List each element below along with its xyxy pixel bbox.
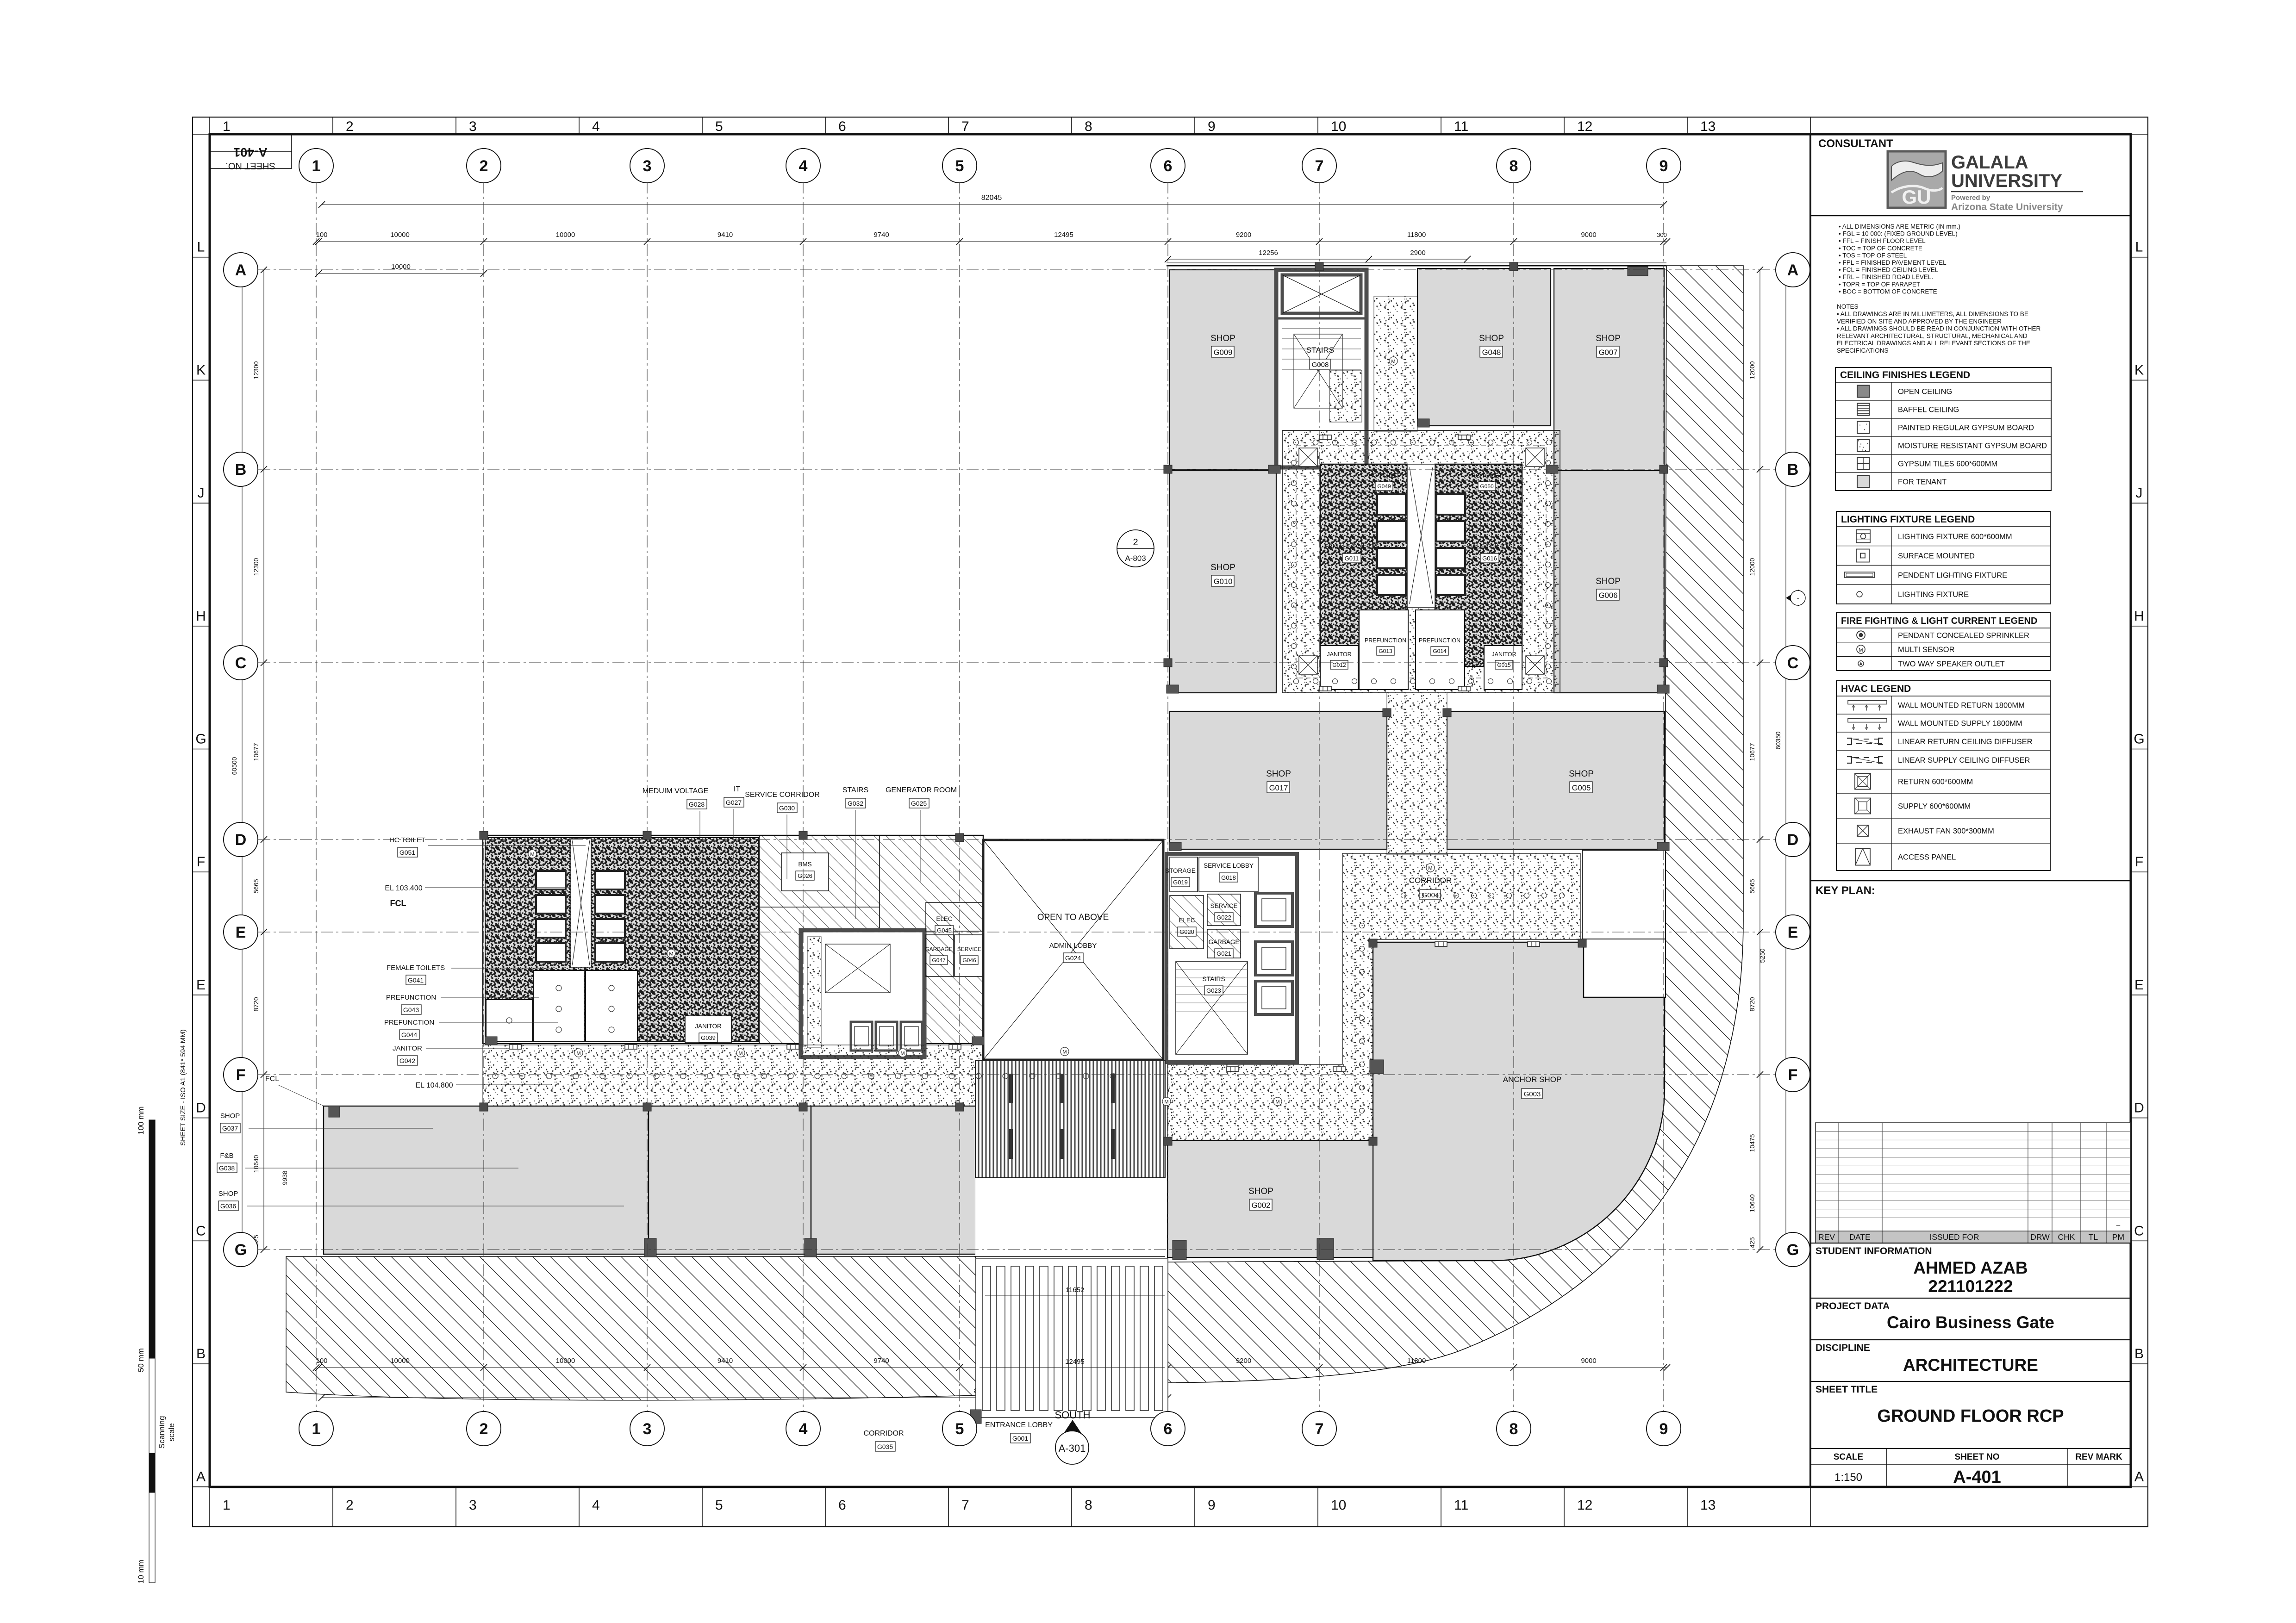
- svg-text:STAIRS: STAIRS: [1202, 975, 1225, 983]
- svg-text:C: C: [235, 654, 247, 672]
- svg-text:GU: GU: [1902, 186, 1931, 208]
- svg-text:PREFUNCTION: PREFUNCTION: [384, 1019, 434, 1026]
- svg-text:D: D: [1787, 831, 1799, 849]
- svg-text:A: A: [235, 261, 247, 279]
- svg-text:B: B: [1787, 461, 1799, 479]
- svg-text:F: F: [197, 854, 205, 870]
- svg-text:LIGHTING FIXTURE LEGEND: LIGHTING FIXTURE LEGEND: [1841, 514, 1975, 525]
- svg-text:G043: G043: [403, 1006, 419, 1014]
- svg-text:60500: 60500: [231, 757, 238, 775]
- svg-text:G041: G041: [408, 976, 424, 984]
- svg-text:E: E: [1788, 924, 1798, 941]
- svg-text:8: 8: [1085, 1498, 1092, 1513]
- svg-text:3: 3: [469, 1498, 477, 1513]
- svg-text:STORAGE: STORAGE: [1165, 867, 1196, 874]
- svg-text:RELEVANT ARCHITECTURAL, STRUCT: RELEVANT ARCHITECTURAL, STRUCTURAL, MECH…: [1837, 332, 2028, 339]
- svg-text:HVAC LEGEND: HVAC LEGEND: [1841, 684, 1911, 694]
- svg-text:11: 11: [1454, 1498, 1468, 1513]
- svg-text:GALALA: GALALA: [1951, 152, 2028, 173]
- svg-text:G024: G024: [1065, 954, 1081, 962]
- svg-text:FOR TENANT: FOR TENANT: [1898, 478, 1947, 486]
- svg-text:SHEET SIZE - ISO A1 (841* 594: SHEET SIZE - ISO A1 (841* 594 MM): [179, 1029, 187, 1145]
- svg-text:G006: G006: [1599, 591, 1618, 600]
- svg-text:A-301: A-301: [1059, 1443, 1086, 1454]
- svg-text:HC TOILET: HC TOILET: [1471, 472, 1502, 479]
- svg-text:7: 7: [961, 1498, 969, 1513]
- svg-text:DATE: DATE: [1849, 1232, 1870, 1242]
- svg-text:G030: G030: [779, 804, 795, 812]
- svg-text:5: 5: [955, 1420, 964, 1438]
- svg-text:MOISTURE RESISTANT GYPSUM BOAR: MOISTURE RESISTANT GYPSUM BOARD: [1898, 442, 2047, 450]
- svg-text:Arizona State University: Arizona State University: [1951, 202, 2063, 212]
- svg-text:G: G: [195, 732, 206, 747]
- svg-text:300: 300: [1657, 231, 1667, 238]
- svg-text:SHOP: SHOP: [220, 1112, 240, 1120]
- svg-text:8: 8: [1510, 157, 1518, 175]
- svg-text:8720: 8720: [1748, 997, 1756, 1011]
- svg-text:2: 2: [480, 1420, 488, 1438]
- svg-text:G019: G019: [1173, 879, 1188, 886]
- svg-text:G: G: [1787, 1241, 1799, 1259]
- svg-text:NOTES: NOTES: [1837, 303, 1859, 310]
- svg-text:10677: 10677: [1748, 743, 1756, 761]
- svg-text:SHOP: SHOP: [1596, 334, 1621, 343]
- svg-text:WALL MOUNTED SUPPLY 1800MM: WALL MOUNTED SUPPLY 1800MM: [1898, 720, 2022, 728]
- svg-text:JANITOR: JANITOR: [1491, 651, 1516, 658]
- svg-text:FCL: FCL: [390, 899, 406, 908]
- svg-text:J: J: [2136, 485, 2143, 501]
- svg-text:10: 10: [1331, 1498, 1346, 1513]
- svg-text:C: C: [196, 1223, 206, 1238]
- svg-text:CONSULTANT: CONSULTANT: [1818, 137, 1893, 150]
- svg-text:9: 9: [1208, 119, 1216, 134]
- svg-text:SHOP: SHOP: [1596, 577, 1621, 586]
- svg-text:• FRL = FINISHED ROAD LEVEL.: • FRL = FINISHED ROAD LEVEL.: [1839, 274, 1933, 280]
- svg-text:A-803: A-803: [1125, 554, 1146, 563]
- svg-text:12256: 12256: [1259, 249, 1278, 257]
- svg-text:425: 425: [1748, 1237, 1756, 1248]
- svg-text:ADMIN LOBBY: ADMIN LOBBY: [1049, 942, 1097, 950]
- svg-text:E: E: [196, 977, 206, 993]
- svg-text:TWO WAY SPEAKER OUTLET: TWO WAY SPEAKER OUTLET: [1898, 660, 2005, 668]
- svg-text:G036: G036: [220, 1202, 236, 1210]
- svg-text:ELECTRICAL DRAWINGS AND ALL RE: ELECTRICAL DRAWINGS AND ALL RELEVANT SEC…: [1837, 340, 2030, 347]
- svg-text:SUPPLY 600*600MM: SUPPLY 600*600MM: [1898, 802, 1971, 811]
- svg-text:PENDANT CONCEALED SPRINKLER: PENDANT CONCEALED SPRINKLER: [1898, 631, 2029, 640]
- svg-text:6: 6: [838, 1498, 846, 1513]
- svg-text:CHK: CHK: [2058, 1232, 2075, 1242]
- svg-text:M: M: [1164, 1100, 1168, 1105]
- svg-text:5665: 5665: [252, 879, 260, 893]
- svg-text:60350: 60350: [1774, 731, 1782, 749]
- svg-text:B: B: [235, 461, 247, 479]
- svg-text:SCALE: SCALE: [1834, 1452, 1863, 1462]
- svg-text:A-401: A-401: [1953, 1468, 2001, 1487]
- svg-text:PREFUNCTION: PREFUNCTION: [1365, 637, 1406, 644]
- svg-text:G039: G039: [701, 1034, 716, 1041]
- svg-text:EXHAUST FAN 300*300MM: EXHAUST FAN 300*300MM: [1898, 827, 1994, 835]
- svg-text:LINEAR SUPPLY CEILING DIFFUSER: LINEAR SUPPLY CEILING DIFFUSER: [1898, 756, 2030, 765]
- svg-text:12300: 12300: [252, 361, 260, 379]
- svg-text:9: 9: [1660, 1420, 1668, 1438]
- svg-text:12495: 12495: [1054, 231, 1073, 239]
- svg-text:6: 6: [838, 119, 846, 134]
- svg-text:PAINTED REGULAR GYPSUM BOARD: PAINTED REGULAR GYPSUM BOARD: [1898, 424, 2034, 432]
- svg-text:SERVICE LOBBY: SERVICE LOBBY: [1204, 862, 1254, 869]
- svg-text:G001: G001: [1012, 1435, 1028, 1442]
- svg-text:M: M: [900, 1051, 905, 1057]
- svg-text:G044: G044: [401, 1031, 417, 1038]
- svg-text:9: 9: [1660, 157, 1668, 175]
- svg-text:• ALL DRAWINGS ARE IN MILLIMET: • ALL DRAWINGS ARE IN MILLIMETERS, ALL D…: [1837, 311, 2028, 317]
- svg-text:ACCESS PANEL: ACCESS PANEL: [1898, 853, 1956, 862]
- svg-text:ELEC: ELEC: [936, 915, 953, 922]
- svg-text:2900: 2900: [1410, 249, 1425, 257]
- svg-text:9000: 9000: [1581, 231, 1596, 239]
- svg-text:4: 4: [592, 119, 600, 134]
- svg-text:F: F: [2135, 854, 2143, 870]
- svg-text:• TOPR = TOP OF PARAPET: • TOPR = TOP OF PARAPET: [1839, 281, 1920, 288]
- svg-text:scale: scale: [167, 1423, 176, 1442]
- svg-text:REV MARK: REV MARK: [2075, 1452, 2122, 1462]
- svg-text:6: 6: [1164, 157, 1173, 175]
- svg-text:Scanning: Scanning: [157, 1416, 166, 1449]
- svg-text:13: 13: [1700, 119, 1716, 134]
- svg-text:G051: G051: [399, 849, 415, 856]
- svg-text:8: 8: [1085, 119, 1092, 134]
- svg-text:PREFUNCTION: PREFUNCTION: [1419, 637, 1460, 644]
- svg-text:• FCL = FINISHED CEILING LEVEL: • FCL = FINISHED CEILING LEVEL: [1839, 267, 1939, 274]
- svg-text:7: 7: [1315, 1420, 1324, 1438]
- svg-text:221101222: 221101222: [1928, 1277, 2013, 1296]
- svg-text:JANITOR: JANITOR: [695, 1023, 722, 1030]
- svg-text:REV: REV: [1818, 1232, 1835, 1242]
- svg-text:G017: G017: [1269, 784, 1288, 792]
- svg-text:JANITOR: JANITOR: [393, 1045, 422, 1052]
- svg-text:12: 12: [1577, 1498, 1592, 1513]
- svg-text:5250: 5250: [1759, 948, 1766, 963]
- svg-text:A: A: [196, 1469, 206, 1485]
- svg-text:H: H: [196, 609, 206, 624]
- svg-text:G028: G028: [689, 801, 705, 808]
- svg-text:100: 100: [316, 231, 327, 239]
- svg-text:10000: 10000: [556, 231, 575, 239]
- svg-text:FCL: FCL: [265, 1075, 279, 1083]
- svg-text:G035: G035: [877, 1443, 893, 1450]
- svg-text:–: –: [2116, 1221, 2121, 1229]
- svg-text:5: 5: [955, 157, 964, 175]
- svg-text:G049: G049: [1377, 483, 1391, 490]
- svg-text:STUDENT INFORMATION: STUDENT INFORMATION: [1816, 1246, 1932, 1256]
- svg-text:12000: 12000: [1748, 558, 1756, 576]
- svg-text:GARBAGE: GARBAGE: [925, 946, 952, 952]
- svg-text:• TOC = TOP OF CONCRETE: • TOC = TOP OF CONCRETE: [1839, 245, 1922, 252]
- svg-text:1: 1: [223, 1498, 231, 1513]
- svg-text:G037: G037: [222, 1125, 238, 1132]
- svg-text:A: A: [1787, 261, 1799, 279]
- svg-text:HC TOILET: HC TOILET: [1368, 472, 1399, 479]
- svg-text:G013: G013: [1379, 648, 1392, 654]
- svg-text:H: H: [2134, 609, 2144, 624]
- svg-text:TL: TL: [2089, 1232, 2098, 1242]
- svg-text:EL 103.400: EL 103.400: [385, 884, 422, 892]
- svg-text:B: B: [196, 1346, 206, 1362]
- svg-text:GYPSUM TILES 600*600MM: GYPSUM TILES 600*600MM: [1898, 460, 1997, 468]
- svg-text:10640: 10640: [252, 1155, 260, 1173]
- svg-text:SERVICE CORRIDOR: SERVICE CORRIDOR: [745, 791, 820, 799]
- svg-text:M: M: [1428, 866, 1432, 871]
- svg-text:E: E: [236, 924, 246, 941]
- svg-text:G045: G045: [937, 927, 952, 934]
- svg-text:KEY PLAN:: KEY PLAN:: [1816, 884, 1875, 897]
- svg-text:D: D: [2134, 1101, 2144, 1116]
- svg-text:SOUTH: SOUTH: [1055, 1409, 1091, 1421]
- svg-text:STAIRS: STAIRS: [1306, 346, 1334, 354]
- svg-text:M: M: [530, 852, 534, 858]
- svg-text:100 mm: 100 mm: [137, 1107, 145, 1135]
- svg-text:GENERATOR ROOM: GENERATOR ROOM: [886, 786, 957, 794]
- svg-text:G016: G016: [1482, 555, 1497, 562]
- svg-text:MULTI SENSOR: MULTI SENSOR: [1898, 646, 1955, 654]
- svg-text:10 mm: 10 mm: [137, 1560, 145, 1584]
- svg-text:G023: G023: [1206, 987, 1221, 994]
- svg-text:G: G: [2134, 732, 2144, 747]
- svg-text:K: K: [196, 362, 206, 378]
- svg-text:EL 104.800: EL 104.800: [415, 1082, 453, 1089]
- svg-text:SHEET NO: SHEET NO: [1954, 1452, 1999, 1462]
- svg-text:10000: 10000: [390, 231, 410, 239]
- svg-text:9410: 9410: [717, 231, 733, 239]
- svg-text:G: G: [235, 1241, 247, 1259]
- svg-text:G038: G038: [219, 1164, 235, 1172]
- svg-text:G002: G002: [1252, 1201, 1271, 1210]
- svg-text:11: 11: [1454, 119, 1468, 134]
- svg-text:B: B: [2134, 1346, 2144, 1362]
- svg-text:OPEN TO ABOVE: OPEN TO ABOVE: [1037, 913, 1109, 922]
- svg-text:M: M: [576, 1051, 580, 1057]
- svg-text:G005: G005: [1572, 784, 1591, 792]
- svg-text:SERVICE: SERVICE: [957, 946, 981, 952]
- svg-text:9938: 9938: [281, 1170, 288, 1185]
- svg-text:M: M: [1391, 359, 1395, 365]
- svg-text:FIRE FIGHTING & LIGHT CURRENT: FIRE FIGHTING & LIGHT CURRENT LEGEND: [1841, 616, 2037, 626]
- svg-text:3: 3: [643, 1420, 652, 1438]
- svg-text:G011: G011: [1345, 555, 1359, 562]
- svg-text:82045: 82045: [981, 194, 1002, 202]
- svg-text:G046: G046: [962, 957, 976, 964]
- svg-text:PENDENT LIGHTING FIXTURE: PENDENT LIGHTING FIXTURE: [1898, 571, 2007, 579]
- svg-text:G014: G014: [1433, 648, 1447, 654]
- svg-text:DISCIPLINE: DISCIPLINE: [1816, 1343, 1870, 1353]
- svg-text:G048: G048: [1482, 348, 1501, 357]
- svg-text:SERVICE: SERVICE: [1210, 902, 1237, 909]
- svg-text:ARCHITECTURE: ARCHITECTURE: [1903, 1356, 2038, 1374]
- svg-text:GROUND FLOOR RCP: GROUND FLOOR RCP: [1877, 1406, 2064, 1426]
- svg-text:M: M: [1859, 647, 1863, 653]
- svg-text:FEMALE TOILETS: FEMALE TOILETS: [1324, 542, 1379, 550]
- svg-text:• ALL DIMENSIONS ARE METRIC (I: • ALL DIMENSIONS ARE METRIC (IN mm.): [1839, 223, 1960, 230]
- svg-text:BMS: BMS: [798, 861, 811, 868]
- svg-text:G032: G032: [848, 800, 863, 807]
- svg-text:12000: 12000: [1748, 361, 1756, 379]
- svg-text:HC TOILET: HC TOILET: [389, 836, 425, 844]
- svg-text:AHMED AZAB: AHMED AZAB: [1913, 1258, 2028, 1277]
- svg-text:G025: G025: [911, 800, 927, 807]
- svg-text:12495: 12495: [1065, 1358, 1085, 1366]
- svg-text:VERIFIED ON SITE AND APPROVED: VERIFIED ON SITE AND APPROVED BY THE ENG…: [1837, 318, 2002, 325]
- svg-text:G021: G021: [1217, 950, 1231, 957]
- svg-text:M: M: [1275, 1100, 1279, 1105]
- svg-text:ISSUED FOR: ISSUED FOR: [1930, 1232, 1979, 1242]
- svg-text:• FFL = FINISH FLOOR LEVEL: • FFL = FINISH FLOOR LEVEL: [1839, 237, 1926, 244]
- svg-text:9200: 9200: [1236, 231, 1251, 239]
- svg-text:G042: G042: [399, 1057, 415, 1064]
- svg-text:CORRIDOR: CORRIDOR: [1409, 876, 1452, 885]
- svg-text:-: -: [1797, 594, 1799, 602]
- svg-text:• ALL DRAWINGS SHOULD BE READ: • ALL DRAWINGS SHOULD BE READ IN CONJUNC…: [1837, 325, 2041, 332]
- svg-text:SHEET TITLE: SHEET TITLE: [1816, 1384, 1878, 1395]
- svg-text:5: 5: [715, 119, 723, 134]
- svg-text:4: 4: [799, 157, 808, 175]
- svg-text:UNIVERSITY: UNIVERSITY: [1951, 171, 2062, 191]
- svg-text:LIGHTING FIXTURE: LIGHTING FIXTURE: [1898, 591, 1969, 599]
- svg-text:PROJECT DATA: PROJECT DATA: [1816, 1301, 1890, 1312]
- svg-text:3: 3: [469, 119, 477, 134]
- svg-text:DRW: DRW: [2030, 1232, 2050, 1242]
- svg-text:Powered by: Powered by: [1951, 194, 1990, 202]
- svg-text:9: 9: [1208, 1498, 1216, 1513]
- svg-text:STAIRS: STAIRS: [842, 786, 869, 794]
- svg-text:7: 7: [961, 119, 969, 134]
- svg-text:SHOP: SHOP: [218, 1190, 238, 1198]
- svg-text:G027: G027: [726, 799, 742, 806]
- svg-text:2: 2: [346, 119, 354, 134]
- svg-text:G010: G010: [1214, 577, 1233, 586]
- svg-text:SHOP: SHOP: [1479, 334, 1504, 343]
- svg-text:13: 13: [1700, 1498, 1716, 1513]
- svg-text:• FGL = 10 000: (FIXED GROUND: • FGL = 10 000: (FIXED GROUND LEVEL): [1839, 230, 1958, 237]
- svg-text:• BOC = BOTTOM OF CONCRETE: • BOC = BOTTOM OF CONCRETE: [1839, 288, 1937, 295]
- svg-text:SHOP: SHOP: [1210, 563, 1235, 572]
- svg-text:SHOP: SHOP: [1210, 334, 1235, 343]
- svg-text:M: M: [669, 951, 673, 957]
- svg-text:C: C: [2134, 1223, 2144, 1238]
- svg-text:L: L: [2135, 240, 2143, 255]
- svg-text:M: M: [738, 1051, 742, 1057]
- svg-text:9740: 9740: [873, 231, 889, 239]
- svg-text:12: 12: [1577, 119, 1592, 134]
- svg-text:G003: G003: [1524, 1090, 1541, 1098]
- svg-text:G047: G047: [932, 957, 946, 964]
- svg-text:ENTRANCE LOBBY: ENTRANCE LOBBY: [985, 1421, 1053, 1429]
- svg-text:SHOP: SHOP: [1248, 1187, 1273, 1196]
- svg-text:MALE TOILETS: MALE TOILETS: [1466, 542, 1513, 550]
- svg-text:11652: 11652: [1066, 1286, 1085, 1294]
- svg-text:50 mm: 50 mm: [137, 1348, 145, 1372]
- svg-text:1:150: 1:150: [1834, 1471, 1862, 1484]
- svg-text:1: 1: [223, 119, 231, 134]
- svg-text:SHOP: SHOP: [1569, 769, 1594, 779]
- svg-text:2: 2: [480, 157, 488, 175]
- svg-text:LINEAR RETURN CEILING DIFFUSER: LINEAR RETURN CEILING DIFFUSER: [1898, 738, 2033, 746]
- svg-text:4: 4: [592, 1498, 600, 1513]
- svg-text:JANITOR: JANITOR: [1327, 651, 1351, 658]
- svg-text:K: K: [2134, 362, 2144, 378]
- svg-text:2: 2: [1133, 537, 1138, 547]
- svg-text:BAFFEL CEILING: BAFFEL CEILING: [1898, 406, 1959, 414]
- svg-text:RETURN 600*600MM: RETURN 600*600MM: [1898, 778, 1973, 786]
- svg-text:FEMALE TOILETS: FEMALE TOILETS: [387, 964, 445, 972]
- svg-text:• TOS = TOP OF STEEL: • TOS = TOP OF STEEL: [1839, 252, 1907, 259]
- svg-text:MEDUIM VOLTAGE: MEDUIM VOLTAGE: [643, 787, 709, 795]
- svg-text:A: A: [2134, 1469, 2144, 1485]
- svg-text:SPECIFICATIONS: SPECIFICATIONS: [1837, 347, 1889, 354]
- svg-text:5665: 5665: [1748, 879, 1756, 893]
- svg-text:G018: G018: [1221, 874, 1236, 881]
- svg-text:1: 1: [312, 157, 321, 175]
- svg-text:GARBAGE: GARBAGE: [1209, 939, 1240, 945]
- svg-text:L: L: [197, 240, 205, 255]
- svg-text:• FPL = FINISHED PAVEMENT LEVE: • FPL = FINISHED PAVEMENT LEVEL: [1839, 259, 1947, 266]
- svg-text:10: 10: [1331, 119, 1346, 134]
- svg-text:F: F: [1788, 1066, 1798, 1084]
- svg-text:G009: G009: [1214, 348, 1233, 357]
- svg-text:ELEC: ELEC: [1179, 917, 1195, 924]
- svg-text:M: M: [1062, 1050, 1067, 1055]
- svg-text:7: 7: [1315, 157, 1324, 175]
- svg-text:Cairo Business Gate: Cairo Business Gate: [1887, 1313, 2054, 1332]
- svg-text:E: E: [2134, 977, 2144, 993]
- svg-text:G007: G007: [1599, 348, 1618, 357]
- svg-text:6: 6: [1164, 1420, 1173, 1438]
- svg-text:F&B: F&B: [220, 1152, 233, 1160]
- svg-text:D: D: [235, 831, 247, 849]
- svg-text:IT: IT: [734, 785, 740, 793]
- svg-text:10475: 10475: [1748, 1134, 1756, 1152]
- svg-text:8: 8: [1510, 1420, 1518, 1438]
- svg-text:5: 5: [715, 1498, 723, 1513]
- svg-text:PM: PM: [2112, 1232, 2124, 1242]
- svg-text:SHOP: SHOP: [1266, 769, 1291, 779]
- svg-text:ANCHOR SHOP: ANCHOR SHOP: [1503, 1075, 1562, 1084]
- svg-text:SURFACE MOUNTED: SURFACE MOUNTED: [1898, 552, 1975, 560]
- svg-text:10677: 10677: [252, 743, 260, 761]
- svg-text:12300: 12300: [252, 558, 260, 576]
- svg-text:8720: 8720: [252, 997, 260, 1011]
- svg-text:WALL MOUNTED RETURN 1800MM: WALL MOUNTED RETURN 1800MM: [1898, 702, 2025, 710]
- svg-text:CEILING FINISHES LEGEND: CEILING FINISHES LEGEND: [1840, 370, 1970, 380]
- svg-text:OPEN CEILING: OPEN CEILING: [1898, 388, 1952, 396]
- svg-text:4: 4: [799, 1420, 808, 1438]
- svg-text:G050: G050: [1480, 483, 1494, 490]
- svg-text:F: F: [236, 1066, 246, 1084]
- svg-text:1: 1: [312, 1420, 321, 1438]
- svg-text:G022: G022: [1217, 914, 1231, 921]
- svg-text:G008: G008: [1312, 361, 1329, 369]
- svg-text:11800: 11800: [1407, 231, 1426, 239]
- svg-text:9000: 9000: [1581, 1357, 1596, 1365]
- svg-text:A-401: A-401: [233, 145, 268, 159]
- svg-text:CORRIDOR: CORRIDOR: [863, 1430, 904, 1437]
- svg-text:2: 2: [346, 1498, 354, 1513]
- svg-text:LIGHTING FIXTURE 600*600MM: LIGHTING FIXTURE 600*600MM: [1898, 533, 2012, 541]
- svg-text:C: C: [1787, 654, 1799, 672]
- svg-text:D: D: [196, 1101, 206, 1116]
- svg-text:J: J: [198, 485, 205, 501]
- svg-text:SHEET NO.: SHEET NO.: [225, 161, 275, 171]
- svg-text:PREFUNCTION: PREFUNCTION: [386, 994, 436, 1001]
- svg-text:10640: 10640: [1748, 1194, 1756, 1212]
